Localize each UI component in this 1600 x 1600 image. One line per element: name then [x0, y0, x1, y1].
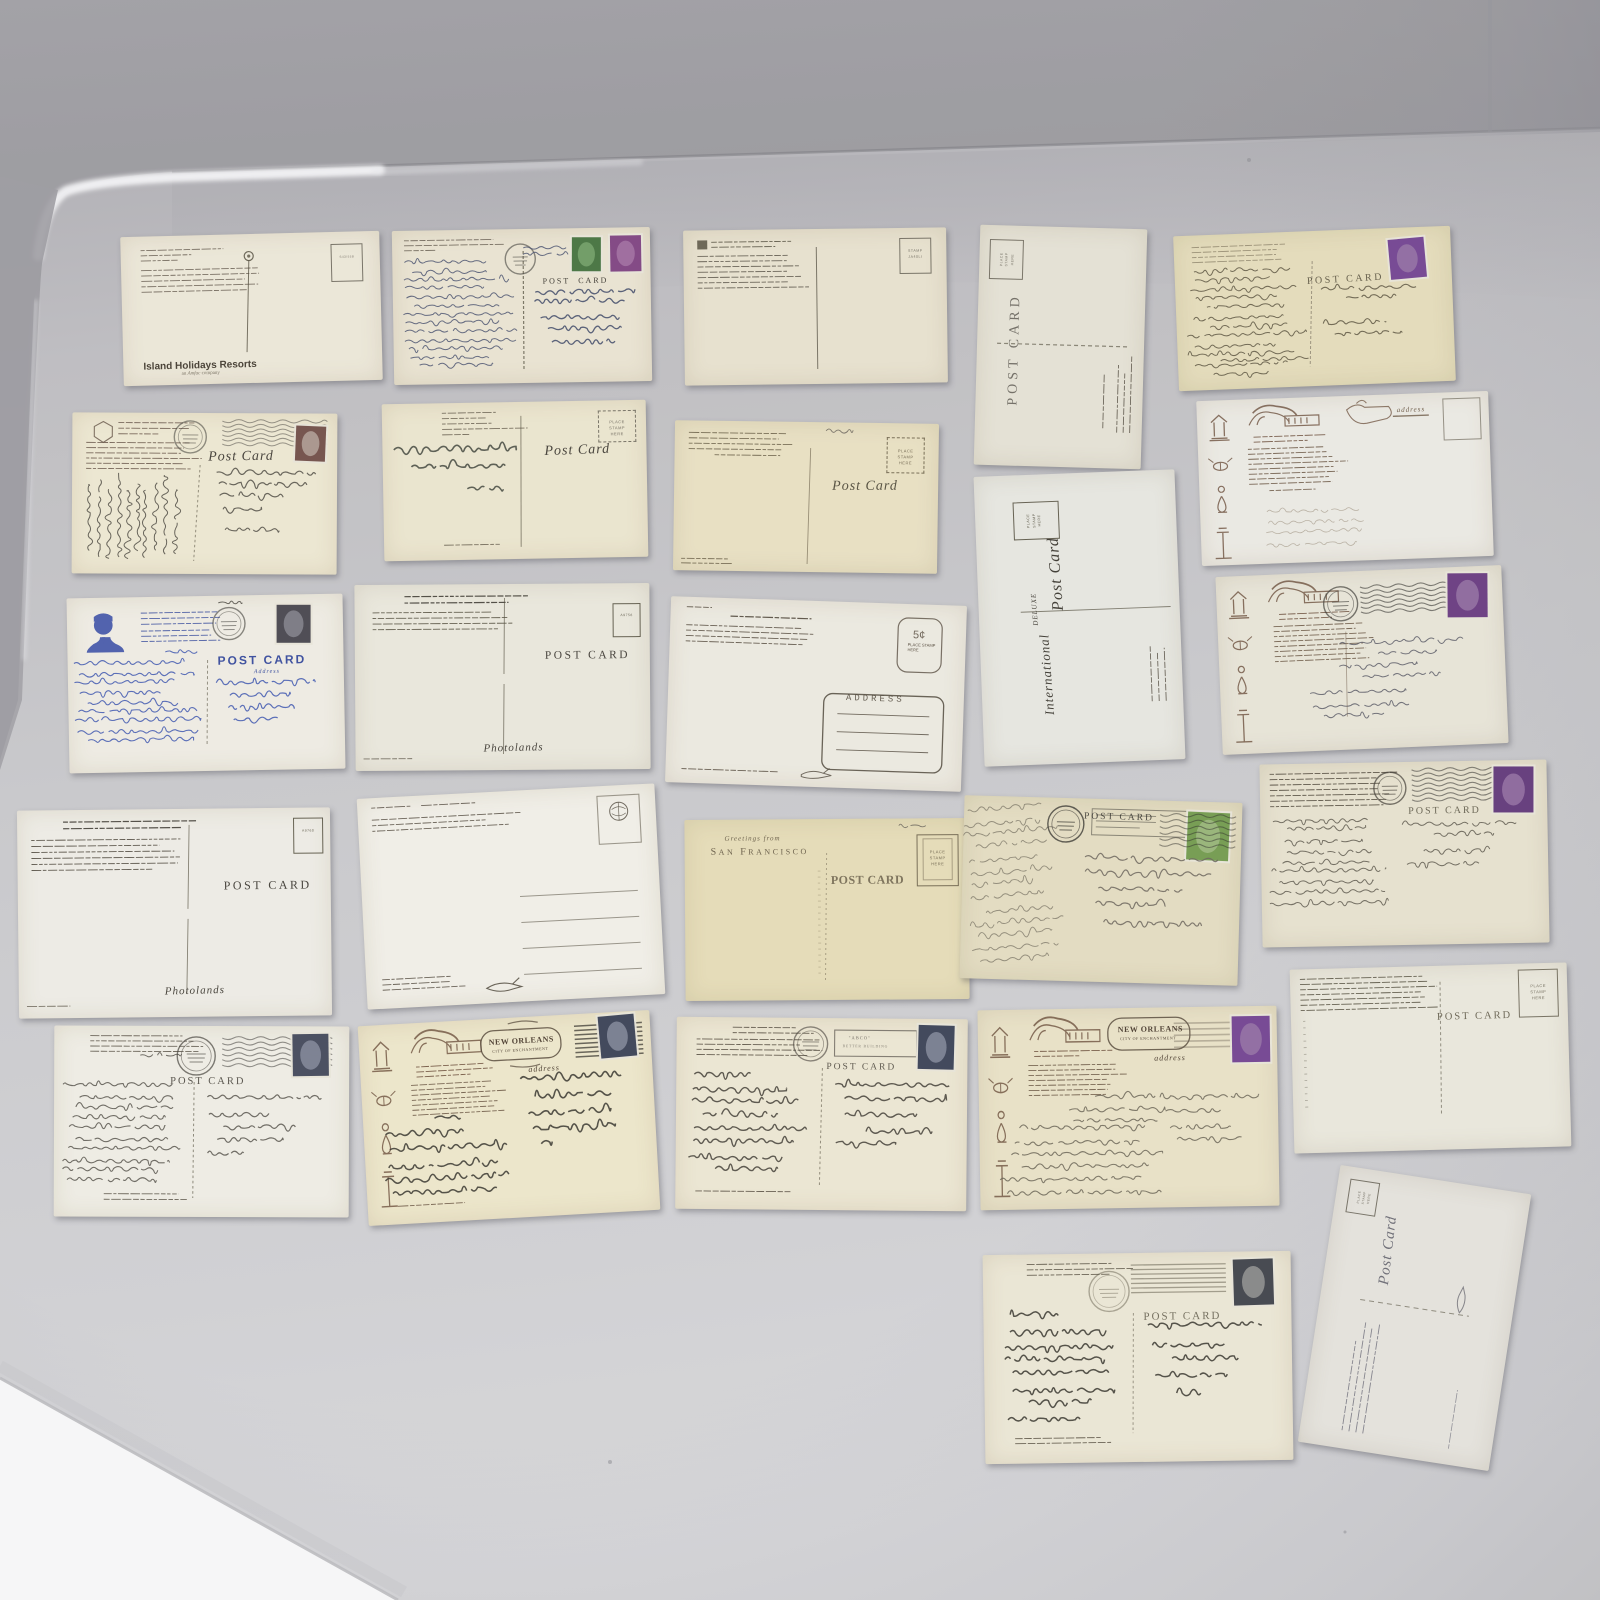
- svg-text:ADDRESS: ADDRESS: [846, 693, 905, 705]
- svg-text:5¢: 5¢: [913, 629, 926, 641]
